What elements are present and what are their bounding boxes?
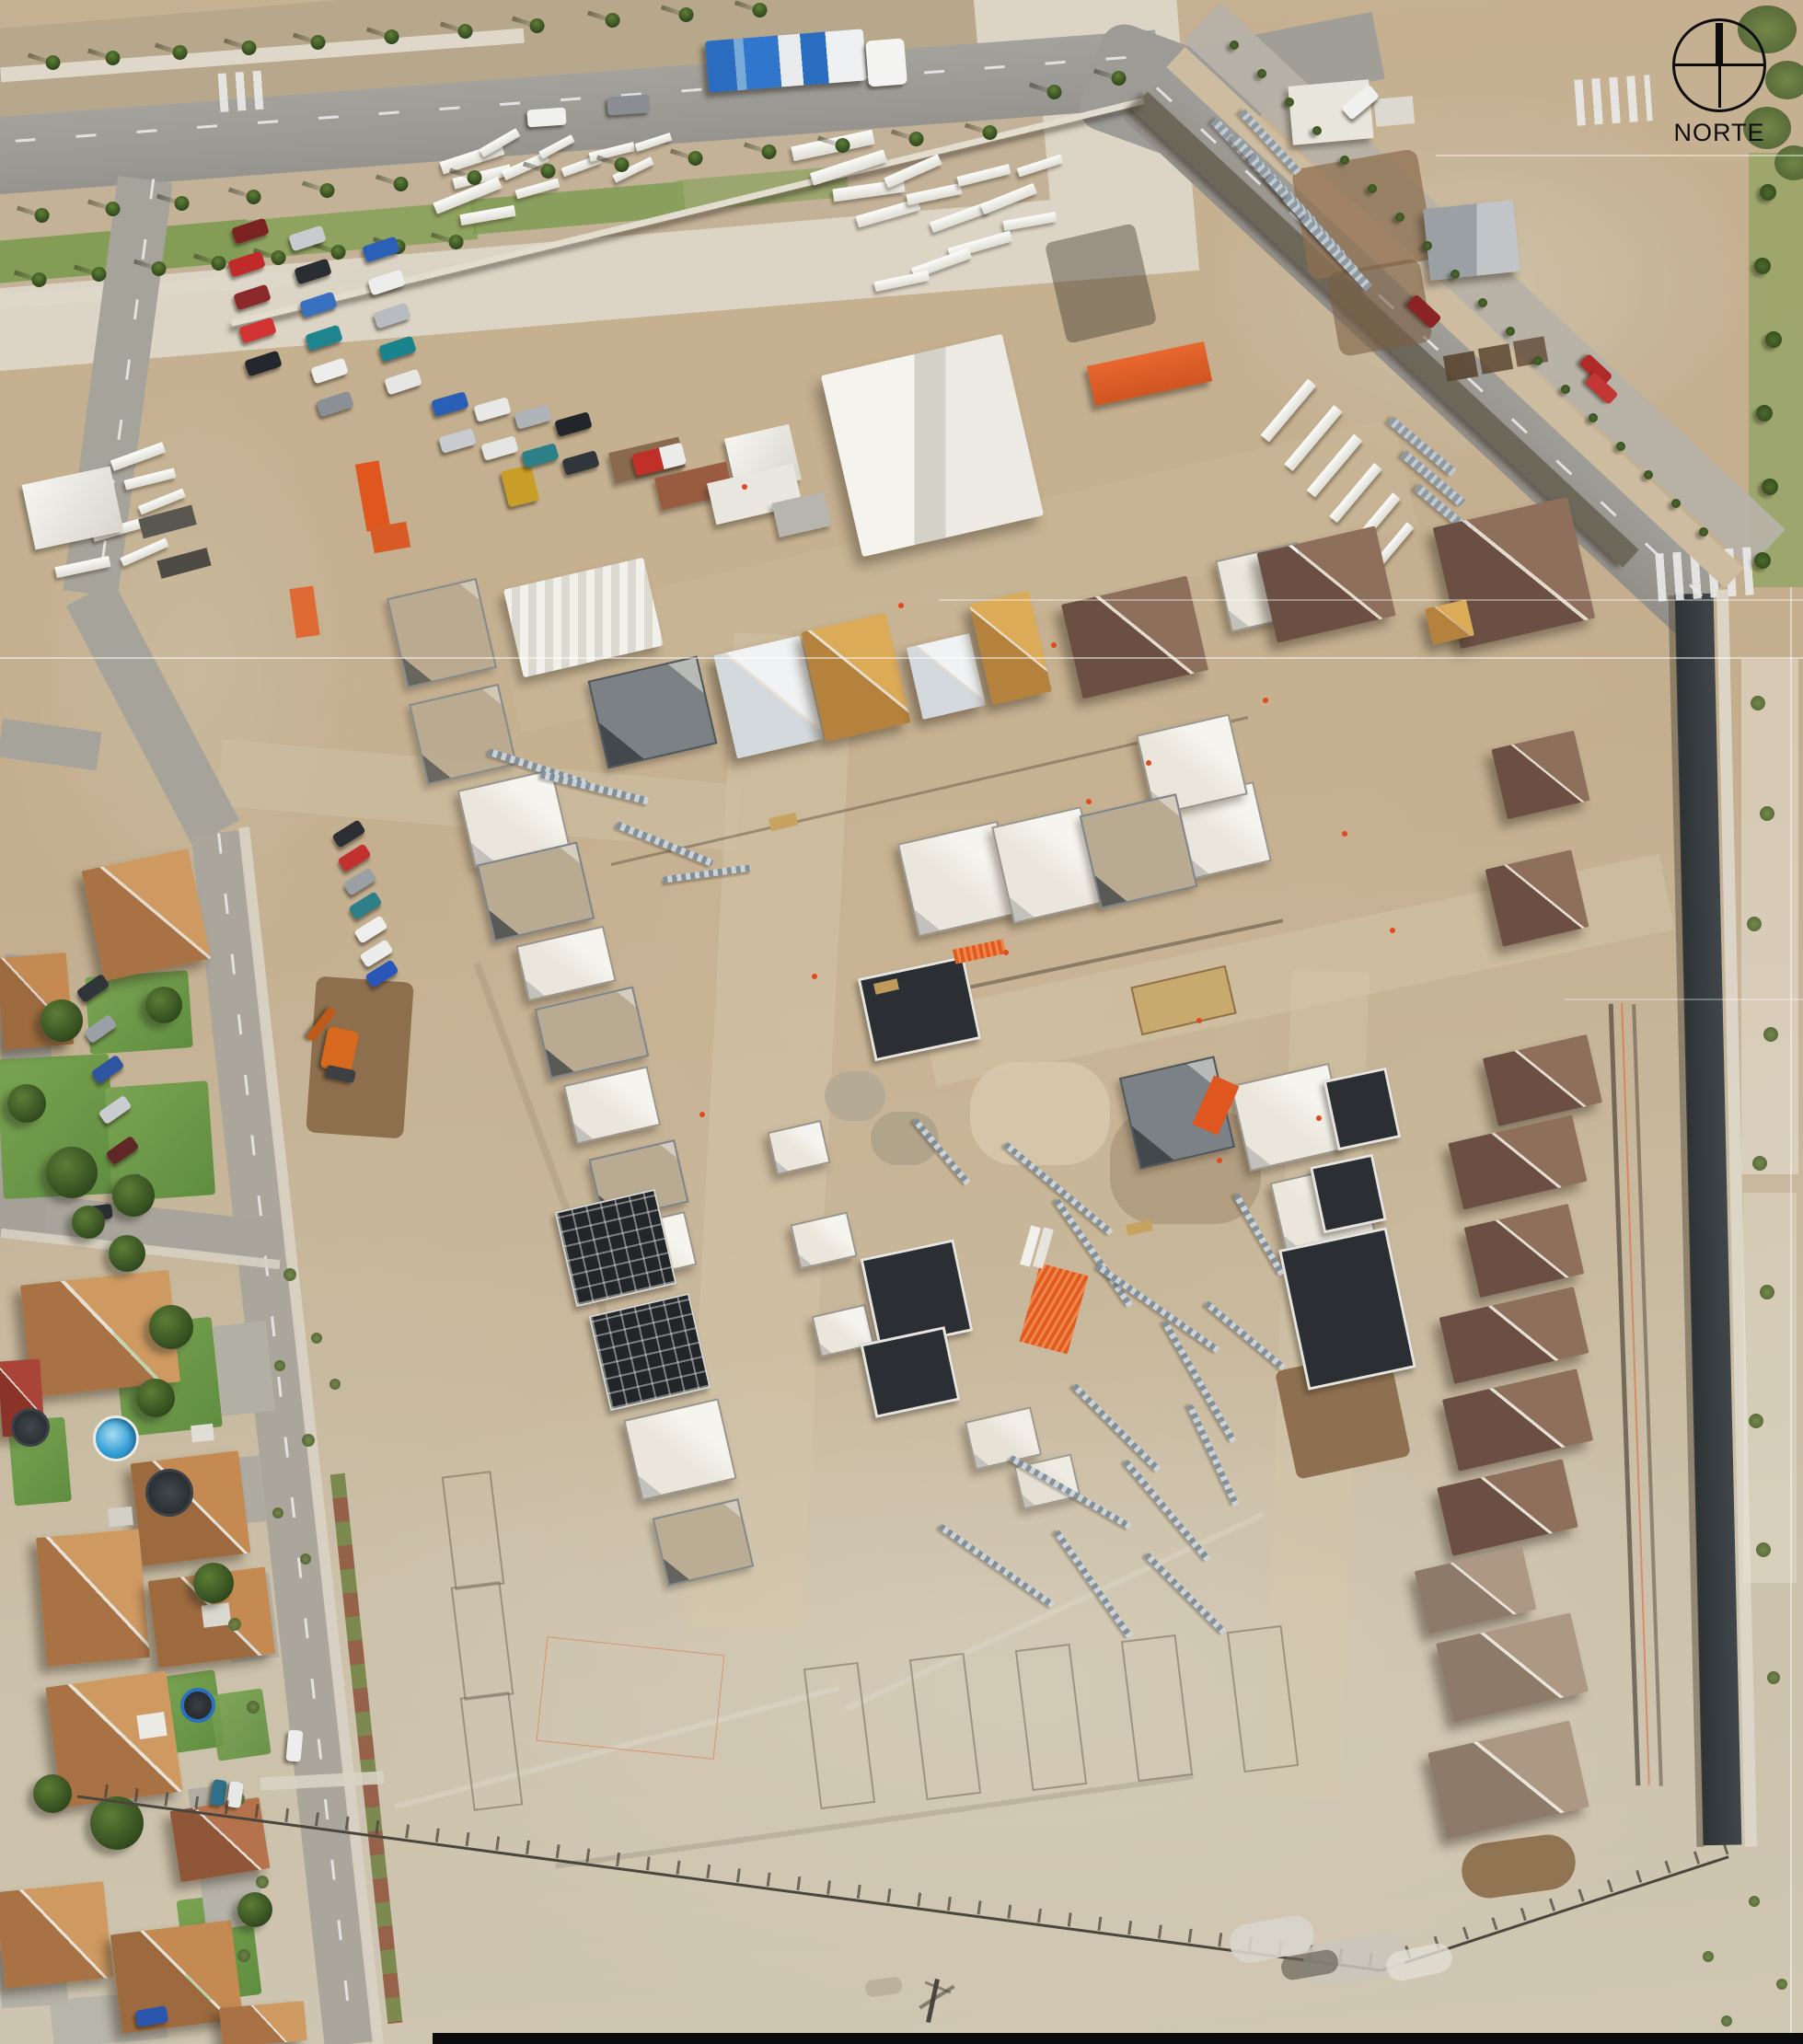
bush — [1776, 1979, 1787, 1990]
bush — [1763, 1027, 1778, 1042]
driveway — [213, 1321, 275, 1416]
bush — [1760, 806, 1774, 821]
neighborhood-house — [219, 2001, 306, 2044]
neigh-lawn — [209, 1688, 271, 1761]
pool — [93, 1415, 139, 1461]
marker-cone — [1086, 799, 1092, 804]
marker-cone — [1316, 1115, 1322, 1121]
median-tree — [1616, 442, 1625, 451]
bush — [272, 1507, 283, 1519]
marker-cone — [699, 1112, 705, 1117]
median-tree — [1756, 405, 1773, 422]
neighborhood-house — [131, 1450, 251, 1566]
tree — [46, 1147, 98, 1198]
median-tree — [1230, 40, 1239, 50]
median-tree — [1589, 413, 1598, 422]
neighborhood-house — [0, 1881, 113, 1989]
bush — [1749, 1896, 1760, 1907]
tree — [72, 1206, 105, 1239]
median-tree — [1533, 356, 1543, 365]
median-tree — [1340, 156, 1349, 165]
median-tree — [1754, 552, 1771, 569]
north-indicator: NORTE — [1671, 18, 1767, 145]
bush — [1751, 696, 1765, 710]
median-tree — [1765, 331, 1782, 348]
median-tree — [1395, 213, 1404, 222]
parked-car — [286, 1729, 304, 1761]
bush — [1747, 917, 1762, 931]
median-tree — [1760, 184, 1776, 201]
bush — [274, 1360, 285, 1371]
mosaic-seam — [1565, 999, 1803, 1000]
bush — [1721, 2015, 1732, 2027]
median-tree — [1285, 98, 1294, 107]
bush — [283, 1268, 296, 1281]
median-tree — [1368, 184, 1377, 193]
marker-cone — [1196, 1018, 1202, 1023]
bush — [300, 1553, 311, 1565]
tree — [193, 1563, 234, 1603]
bush — [1749, 1414, 1763, 1428]
bush — [1752, 1156, 1767, 1171]
trampoline — [11, 1408, 50, 1447]
mosaic-seam — [1790, 587, 1792, 2044]
orthophoto-stage: NORTE — [0, 0, 1803, 2044]
median-tree — [1423, 241, 1432, 250]
north-arrow-bar — [1716, 23, 1723, 64]
dirt-patch — [1478, 343, 1513, 374]
dirt-patch — [1513, 336, 1548, 366]
median-tree — [1478, 298, 1487, 307]
median-tree — [1754, 258, 1771, 274]
marker-cone — [812, 974, 817, 979]
vehicle — [607, 94, 650, 115]
tree — [149, 1305, 193, 1349]
crosswalk — [1574, 75, 1652, 126]
bush — [1756, 1542, 1771, 1557]
median-tree — [1671, 499, 1681, 508]
neighborhood-house — [82, 849, 212, 981]
median-tree — [1644, 470, 1653, 479]
median-tree — [1257, 69, 1266, 78]
bush — [329, 1379, 341, 1390]
tree — [237, 1892, 272, 1927]
tree — [109, 1235, 145, 1272]
marker-cone — [1263, 698, 1268, 703]
bush — [311, 1333, 322, 1344]
bush — [247, 1701, 260, 1714]
tree — [7, 1084, 46, 1123]
marker-cone — [1390, 928, 1395, 933]
dirt-patch — [825, 1071, 885, 1121]
marker-cone — [1003, 950, 1009, 955]
neighborhood-house — [36, 1529, 150, 1666]
median-tree — [1312, 126, 1322, 135]
sidewalk — [1743, 1193, 1797, 1583]
north-arrow-tail — [1718, 65, 1721, 108]
tree — [33, 1774, 72, 1813]
mosaic-seam — [939, 599, 1803, 601]
garden-shed — [202, 1602, 232, 1627]
bush — [1760, 1285, 1774, 1299]
marker-cone — [1146, 760, 1151, 766]
north-arrow-icon — [1672, 18, 1766, 112]
bush — [237, 1949, 250, 1962]
dirt-patch — [1443, 351, 1478, 381]
mosaic-seam — [0, 657, 1803, 659]
median-tree — [1506, 327, 1515, 336]
tree — [145, 987, 182, 1023]
marker-cone — [1217, 1158, 1222, 1163]
bush — [1767, 1671, 1780, 1684]
bush — [1765, 61, 1803, 99]
marker-cone — [1051, 642, 1057, 648]
mosaic-seam — [1436, 155, 1803, 156]
median-tree — [1762, 479, 1778, 495]
bush — [1703, 1951, 1714, 1962]
yard-structure — [1374, 96, 1415, 127]
bush — [302, 1434, 315, 1447]
median-tree — [1561, 385, 1570, 394]
crosswalk — [218, 70, 272, 112]
bush — [256, 1876, 269, 1888]
trampoline-blue — [180, 1688, 215, 1723]
yard-structure — [1423, 200, 1520, 281]
bush — [228, 1618, 241, 1631]
vehicle — [526, 108, 566, 128]
garden-shed — [108, 1507, 133, 1527]
black-foundation — [1310, 1154, 1387, 1234]
garden-shed — [191, 1424, 214, 1442]
frame-bar — [433, 2033, 1803, 2044]
garden-shed — [136, 1712, 167, 1739]
marker-cone — [898, 603, 904, 608]
tree — [40, 999, 83, 1042]
string-line — [537, 1636, 725, 1760]
north-label: NORTE — [1671, 121, 1767, 145]
vehicle — [865, 38, 907, 87]
tree — [136, 1379, 175, 1417]
trampoline — [145, 1469, 193, 1517]
median-tree — [1450, 270, 1460, 279]
median-tree — [1699, 527, 1708, 537]
dirt-patch — [970, 1062, 1110, 1165]
marker-cone — [742, 484, 747, 490]
marker-cone — [1342, 831, 1347, 837]
tree — [112, 1174, 155, 1217]
